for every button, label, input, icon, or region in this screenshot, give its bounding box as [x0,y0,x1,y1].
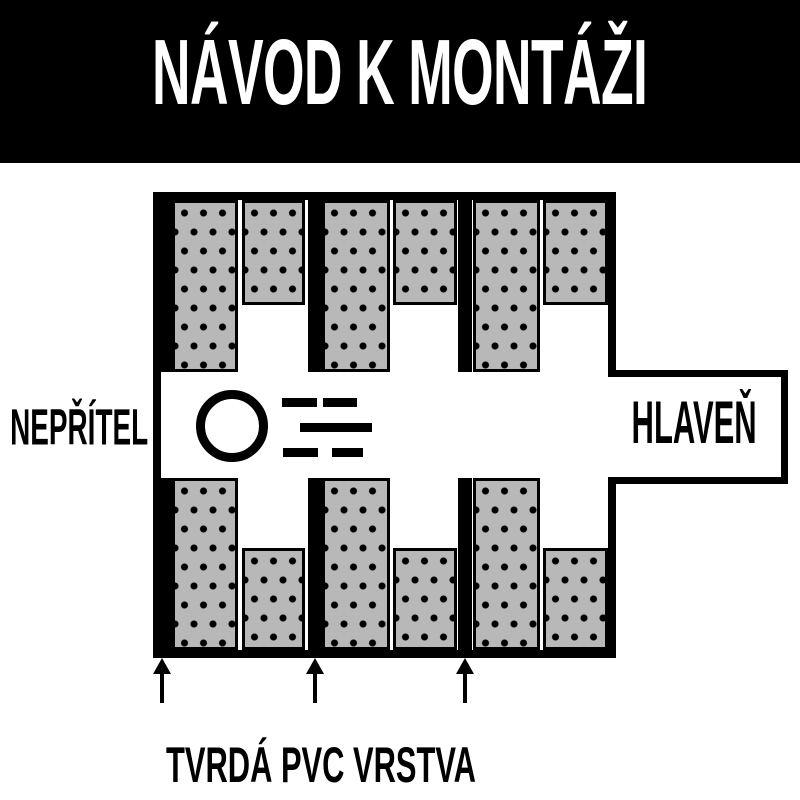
baffle-bottom-6-short [543,548,608,650]
up-arrow-stem [313,673,317,703]
up-arrow-icon [153,658,171,674]
pvc-strip-1-top [161,200,172,372]
enemy-label: NEPŘÍTEL [10,402,148,453]
pvc-strip-1-bottom [161,478,172,650]
pvc-layer-label: TVRDÁ PVC VRSTVA [166,740,476,790]
baffle-bottom-3-long [322,478,390,650]
baffle-bottom-1-long [172,478,238,650]
speed-dashes-icon [283,448,318,457]
baffle-top-4-short [393,200,457,305]
baffle-top-3-long [322,200,390,372]
pvc-strip-3-top [458,200,472,372]
header-bar: NÁVOD K MONTÁŽI [0,0,800,163]
pvc-strip-2-top [308,200,322,372]
speed-dashes-icon [332,448,363,457]
up-arrow-icon [456,658,474,674]
baffle-bottom-2-short [242,548,305,650]
baffle-top-2-short [242,200,305,305]
speed-dashes-icon [300,423,372,432]
barrel-box: HLAVEŇ [608,370,788,484]
up-arrow-icon [306,658,324,674]
baffle-bottom-4-short [393,548,457,650]
up-arrow-stem [160,673,164,703]
page-title: NÁVOD K MONTÁŽI [152,26,647,137]
up-arrow-stem [463,673,467,703]
baffle-top-5-long [473,200,540,372]
speed-dashes-icon [323,398,357,407]
barrel-label: HLAVEŇ [632,393,757,461]
baffle-top-6-short [543,200,608,305]
speed-dashes-icon [282,398,317,407]
baffle-bottom-5-long [473,478,540,650]
bullet-circle-icon [196,390,268,462]
pvc-strip-3-bottom [458,478,472,650]
baffle-top-1-long [172,200,238,372]
pvc-strip-2-bottom [308,478,322,650]
